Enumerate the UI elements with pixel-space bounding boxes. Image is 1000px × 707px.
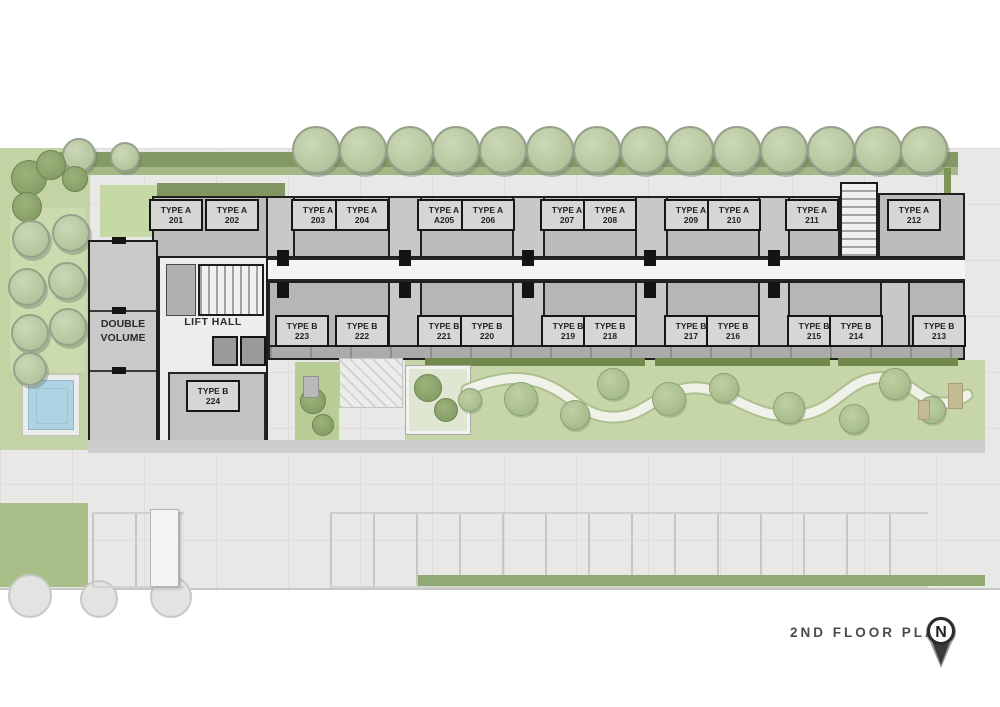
tree-icon: [11, 314, 49, 352]
unit-number: 207: [560, 215, 574, 225]
unit-number: 217: [684, 331, 698, 341]
unit-type: TYPE A: [719, 205, 749, 215]
unit-type: TYPE B: [841, 321, 872, 331]
unit-type: TYPE A: [429, 205, 459, 215]
shaft-mark: [644, 282, 656, 298]
parked-vehicle: [150, 509, 179, 587]
unit-204-label: TYPE A204: [335, 199, 389, 231]
unit-type: TYPE A: [217, 205, 247, 215]
tree-icon: [432, 126, 480, 174]
double-volume-line2: VOLUME: [101, 332, 146, 344]
tree-icon: [52, 214, 90, 252]
garden-bench: [918, 400, 930, 420]
tree-icon: [652, 382, 686, 416]
unit-type: TYPE B: [718, 321, 749, 331]
unit-number: 212: [907, 215, 921, 225]
unit-212-label: TYPE A212: [887, 199, 941, 231]
unit-number: 206: [481, 215, 495, 225]
unit-214-label: TYPE B214: [829, 315, 883, 347]
pool-inner-line: [36, 388, 68, 424]
door-mark: [112, 237, 126, 244]
floor-plan-image: DOUBLE VOLUME LIFT HALL 2ND: [0, 0, 1000, 707]
unit-number: 211: [805, 215, 819, 225]
tree-icon: [62, 166, 88, 192]
unit-number: 223: [295, 331, 309, 341]
unit-number: 208: [603, 215, 617, 225]
unit-type: TYPE B: [198, 386, 229, 396]
tree-icon: [13, 352, 47, 386]
tree-icon: [292, 126, 340, 174]
corridor: [238, 258, 965, 281]
tree-icon: [479, 126, 527, 174]
unit-201-label: TYPE A201: [149, 199, 203, 231]
unit-number: 213: [932, 331, 946, 341]
unit-type: TYPE B: [595, 321, 626, 331]
unit-number: 209: [684, 215, 698, 225]
unit-type: TYPE B: [429, 321, 460, 331]
unit-number: 224: [206, 396, 220, 406]
unit-number: 221: [437, 331, 451, 341]
unit-202-label: TYPE A202: [205, 199, 259, 231]
door-mark: [112, 367, 126, 374]
unit-number: 215: [807, 331, 821, 341]
tree-icon: [110, 142, 140, 172]
tree-icon: [839, 404, 869, 434]
shaft-mark: [644, 250, 656, 266]
tree-icon: [807, 126, 855, 174]
door-mark: [112, 307, 126, 314]
service-room: [166, 264, 196, 316]
hatched-paving: [339, 358, 403, 408]
unit-type: TYPE A: [676, 205, 706, 215]
lift-shaft-2: [240, 336, 266, 366]
tree-icon: [760, 126, 808, 174]
lift-hall-label: LIFT HALL: [158, 316, 268, 328]
stair-room: [840, 182, 878, 258]
unit-type: TYPE B: [347, 321, 378, 331]
unit-218-label: TYPE B218: [583, 315, 637, 347]
tree-icon: [666, 126, 714, 174]
unit-type: TYPE A: [552, 205, 582, 215]
tree-icon: [504, 382, 538, 416]
faded-tree-icon: [8, 574, 52, 618]
unit-type: TYPE A: [473, 205, 503, 215]
unit-number: A205: [434, 215, 454, 225]
unit-type: TYPE A: [595, 205, 625, 215]
unit-208-label: TYPE A208: [583, 199, 637, 231]
unit-number: 216: [726, 331, 740, 341]
unit-213-label: TYPE B213: [912, 315, 966, 347]
unit-type: TYPE A: [899, 205, 929, 215]
tree-icon: [526, 126, 574, 174]
unit-type: TYPE B: [924, 321, 955, 331]
tree-icon: [339, 126, 387, 174]
shaft-mark: [277, 282, 289, 298]
south-walkway: [88, 440, 985, 453]
unit-number: 218: [603, 331, 617, 341]
shaft-mark: [277, 250, 289, 266]
unit-206-label: TYPE A206: [461, 199, 515, 231]
tree-icon: [597, 368, 629, 400]
unit-211-label: TYPE A211: [785, 199, 839, 231]
unit-number: 210: [727, 215, 741, 225]
shaft-mark: [768, 250, 780, 266]
garden-bench: [948, 383, 963, 409]
shaft-mark: [399, 282, 411, 298]
tree-icon: [12, 220, 50, 258]
unit-number: 203: [311, 215, 325, 225]
tree-icon: [900, 126, 948, 174]
unit-type: TYPE A: [303, 205, 333, 215]
tree-icon: [8, 268, 46, 306]
unit-number: 220: [480, 331, 494, 341]
unit-number: 204: [355, 215, 369, 225]
north-letter: N: [935, 624, 947, 641]
unit-224-label: TYPE B224: [186, 380, 240, 412]
tree-icon: [573, 126, 621, 174]
unit-number: 201: [169, 215, 183, 225]
tree-icon: [620, 126, 668, 174]
unit-210-label: TYPE A210: [707, 199, 761, 231]
double-volume-line1: DOUBLE: [101, 318, 145, 330]
unit-number: 222: [355, 331, 369, 341]
unit-type: TYPE B: [287, 321, 318, 331]
tree-icon: [458, 388, 482, 412]
lift-hall-stair: [198, 264, 264, 316]
left-parking-green: [0, 503, 88, 587]
tree-icon: [560, 400, 590, 430]
tree-icon: [709, 373, 739, 403]
shaft-mark: [399, 250, 411, 266]
unit-type: TYPE B: [799, 321, 830, 331]
unit-number: 202: [225, 215, 239, 225]
tree-icon: [854, 126, 902, 174]
tree-icon: [48, 262, 86, 300]
unit-type: TYPE A: [161, 205, 191, 215]
tree-icon: [12, 192, 42, 222]
unit-number: 219: [561, 331, 575, 341]
tree-icon: [386, 126, 434, 174]
secondary-hedge: [157, 183, 285, 197]
parking-hedge: [418, 575, 985, 586]
unit-223-label: TYPE B223: [275, 315, 329, 347]
unit-type: TYPE B: [676, 321, 707, 331]
tree-icon: [879, 368, 911, 400]
unit-222-label: TYPE B222: [335, 315, 389, 347]
tree-icon: [773, 392, 805, 424]
shrub-icon: [312, 414, 334, 436]
unit-number: 214: [849, 331, 863, 341]
unit-216-label: TYPE B216: [706, 315, 760, 347]
unit-type: TYPE A: [797, 205, 827, 215]
double-volume-label: DOUBLE VOLUME: [88, 318, 158, 345]
unit-type: TYPE A: [347, 205, 377, 215]
lift-shaft-1: [212, 336, 238, 366]
tree-icon: [713, 126, 761, 174]
shaft-mark: [768, 282, 780, 298]
shaft-mark: [522, 282, 534, 298]
shaft-mark: [522, 250, 534, 266]
unit-type: TYPE B: [472, 321, 503, 331]
tree-icon: [49, 308, 87, 346]
north-pin-icon: N: [921, 612, 961, 670]
unit-220-label: TYPE B220: [460, 315, 514, 347]
planter-box: [303, 376, 319, 398]
unit-type: TYPE B: [553, 321, 584, 331]
